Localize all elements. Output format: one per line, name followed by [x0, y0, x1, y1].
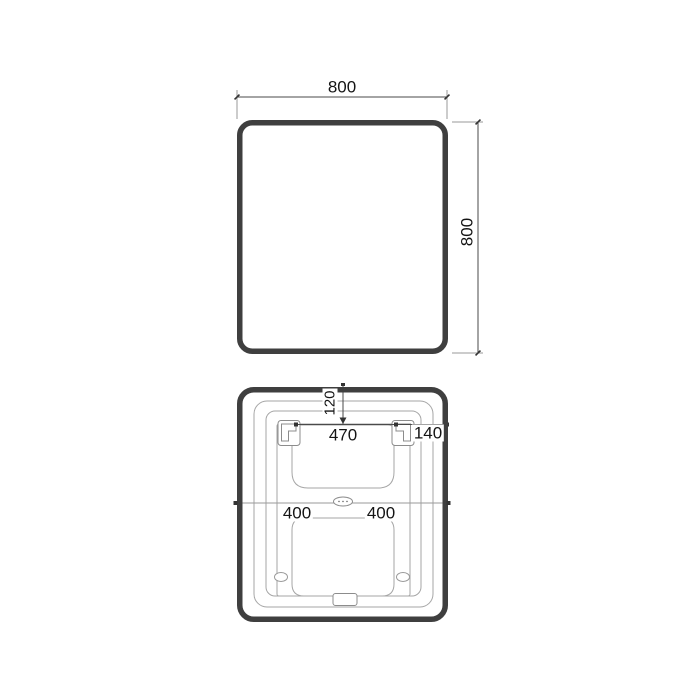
back-bracket-edge-label: 140	[412, 425, 444, 442]
back-top-offset-label: 120	[323, 388, 338, 417]
sensor-dot	[346, 501, 347, 502]
junction-box	[333, 594, 357, 606]
fixing-hole-right	[397, 573, 410, 582]
dim-tick	[234, 501, 238, 505]
front-view-outline	[240, 123, 446, 352]
back-center-left-label: 400	[281, 505, 313, 522]
back-bracket-span-label: 470	[327, 427, 359, 444]
fixing-hole-left	[275, 573, 288, 582]
back-center-right-label: 400	[365, 505, 397, 522]
front-width-label: 800	[326, 79, 358, 96]
dim-tick	[447, 501, 451, 505]
dim-tick	[341, 383, 345, 386]
dim-tick	[294, 423, 298, 427]
front-height-label: 800	[459, 216, 476, 248]
technical-drawing: 800 800 120 470 140 400 400	[0, 0, 700, 700]
dim-tick	[394, 423, 398, 427]
front-view	[234, 90, 483, 356]
sensor-dot	[338, 501, 339, 502]
sensor-dot	[342, 501, 343, 502]
back-view	[234, 383, 451, 619]
drawing-linework	[0, 0, 700, 700]
dim-arrow-down	[340, 418, 347, 425]
lower-recess	[292, 518, 394, 596]
